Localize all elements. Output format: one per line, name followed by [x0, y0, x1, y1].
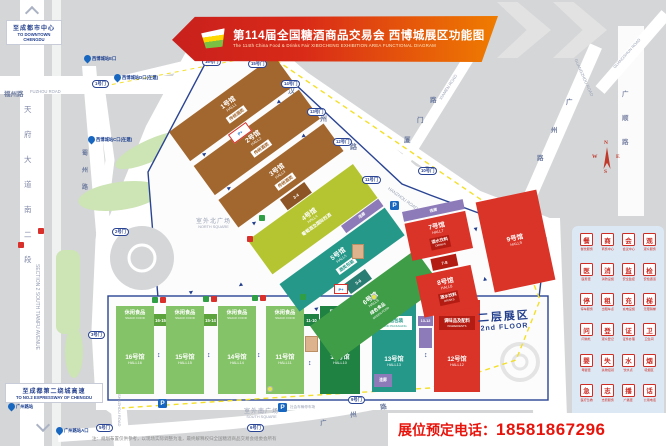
- legend-item-icon: 停: [580, 293, 593, 306]
- restroom-icon: [260, 295, 266, 301]
- legend-item: 停 停车服务: [577, 293, 596, 311]
- phone-number: 18581867296: [496, 420, 606, 440]
- exhibition-map: 第114届全国糖酒商品交易会 西博城展区功能图 The 114th China …: [0, 0, 666, 446]
- south-square-label: 室外南广场SOUTH SQUARE: [244, 406, 279, 419]
- gate-label: 9号门: [348, 396, 365, 404]
- gate-label: 3号门: [88, 331, 105, 339]
- restroom-icon: [211, 296, 217, 302]
- service-point-icon: P+: [334, 284, 348, 294]
- hall-8-category: 酒水饮料DRINKS: [438, 290, 461, 306]
- direction-expressway-cn: 至成都第二绕城高速: [8, 386, 100, 395]
- gate-label: 1号门: [92, 80, 109, 88]
- metro-icon: [83, 54, 93, 64]
- service-building: [305, 336, 318, 352]
- legend-item: 充 充电设施: [619, 293, 638, 311]
- metro-entrance: 广州路站A口: [56, 427, 89, 434]
- phone-label: 展位预定电话：: [398, 420, 496, 440]
- legend-item: 播 广播室: [619, 384, 638, 402]
- legend-item-icon: 梯: [643, 293, 656, 306]
- legend-item-icon: 问: [580, 323, 593, 336]
- legend-panel: 餐 餐饮服务 商 商务中心 会 会议中心 观 观众服务 医 医务室 消 消防设施…: [572, 226, 664, 439]
- gate-label: 13号门: [307, 108, 326, 116]
- legend-item-icon: 志: [601, 384, 614, 397]
- north-square-label: 室外北广场NORTH SQUARE: [196, 216, 231, 229]
- road-label-guangzhou: 广: [566, 96, 573, 106]
- hall-11: 休闲食品SNACK FOOD 11号馆HALL11: [266, 306, 304, 394]
- metro-icon: [7, 402, 17, 412]
- restroom-icon: [160, 297, 166, 303]
- legend-item-icon: 登: [601, 323, 614, 336]
- legend-item: 证 证件办理: [619, 323, 638, 341]
- hall-14: 休闲食品SNACK FOOD 14号馆HALL14: [218, 306, 256, 394]
- booking-phone-bar: 展位预定电话： 18581867296: [388, 413, 666, 446]
- direction-downtown: 至成都市中心 TO DOWNTOWN CHENGDU: [6, 20, 62, 45]
- gate-label: 2号门: [112, 228, 129, 236]
- hall-12-category: 调味品及配料 INGREDIENTS: [439, 316, 475, 330]
- direction-downtown-en: TO DOWNTOWN CHENGDU: [9, 32, 59, 42]
- parking-icon: P: [158, 399, 167, 408]
- legend-item-icon: 婴: [580, 354, 593, 367]
- road-label-shuzhou: 蜀州路: [82, 148, 88, 191]
- connector-15-14: 15-14: [204, 314, 217, 326]
- road-label-guangzhou: 路: [537, 152, 544, 162]
- direction-expressway-en: TO NO.2 EXPRESSWAY OF CHENGDU: [8, 395, 100, 400]
- legend-item-icon: 证: [622, 323, 635, 336]
- gate-label: 14号门: [281, 80, 300, 88]
- hall-15: 休闲食品SNACK FOOD 15号馆HALL15: [166, 306, 204, 394]
- legend-item: 失 失物招领: [598, 354, 617, 372]
- legend-item: 登 观众登记: [598, 323, 617, 341]
- legend-item-icon: 充: [622, 293, 635, 306]
- road-label-tianfu-en: SECTION 2 SOUTH TIANFU AVENUE: [34, 264, 40, 350]
- legend-item: 梯 无障碍梯: [640, 293, 659, 311]
- route-dot-icon: [267, 386, 273, 392]
- metro-entrance: 西博城站C口(在建): [88, 136, 132, 143]
- road-label-guangzhou: 州: [551, 124, 558, 134]
- legend-item: 医 医务室: [577, 263, 596, 281]
- legend-item: 检 安检通道: [640, 263, 659, 281]
- entrance-icon: [203, 296, 209, 302]
- direction-expressway: 至成都第二绕城高速 TO NO.2 EXPRESSWAY OF CHENGDU: [5, 383, 103, 403]
- legend-item: 会 会议中心: [619, 233, 638, 251]
- legend-item: 观 观众服务: [640, 233, 659, 251]
- entrance-icon: [259, 215, 265, 221]
- banner-title: 第114届全国糖酒商品交易会 西博城展区功能图: [233, 30, 485, 43]
- gate-label: 10号门: [418, 167, 437, 175]
- road-label-guangshun: 广顺路: [622, 88, 629, 146]
- gate-label: 6号门: [247, 424, 264, 432]
- road-label-guangzhou-s: 州: [349, 409, 357, 420]
- legend-item-icon: 租: [601, 293, 614, 306]
- legend-item-icon: 观: [643, 233, 656, 246]
- compass-icon: N E S W: [594, 140, 620, 176]
- road-label-xiamen: 门: [417, 114, 424, 124]
- legend-item: 监 安全监控: [619, 263, 638, 281]
- metro-icon: [87, 135, 97, 145]
- legend-item: 餐 餐饮服务: [577, 233, 596, 251]
- road-label-fuzhou: 福州路: [4, 88, 24, 98]
- legend-item: 话 公用电话: [640, 384, 659, 402]
- legend-item: 问 问询处: [577, 323, 596, 341]
- legend-item: 水 饮水点: [619, 354, 638, 372]
- legend-item-icon: 水: [622, 354, 635, 367]
- gate-label: 5号门: [96, 424, 113, 432]
- second-floor-label: 二层展区2nd FLOOR: [477, 306, 530, 333]
- legend-item-icon: 话: [643, 384, 656, 397]
- metro-icon: [55, 426, 65, 436]
- entrance-icon: [152, 297, 158, 303]
- legend-item-icon: 烟: [643, 354, 656, 367]
- legend-item-icon: 播: [622, 384, 635, 397]
- direction-downtown-cn: 至成都市中心: [9, 23, 59, 32]
- legend-item: 急 医疗急救: [577, 384, 596, 402]
- legend-item-icon: 医: [580, 263, 593, 276]
- legend-item: 卫 卫生间: [640, 323, 659, 341]
- gate-label: 12号门: [333, 138, 352, 146]
- legend-item-icon: 卫: [643, 323, 656, 336]
- legend-item-icon: 商: [601, 233, 614, 246]
- hall-8: 8号馆HALL8 酒水饮料DRINKS: [416, 265, 480, 318]
- legend-item-icon: 餐: [580, 233, 593, 246]
- legend-item-icon: 检: [643, 263, 656, 276]
- metro-entrance: 广州路站: [8, 403, 33, 410]
- parking-icon: P: [390, 201, 399, 210]
- legend-item-icon: 会: [622, 233, 635, 246]
- road-label-fuzhou-en: FUZHOU ROAD: [30, 89, 61, 94]
- legend-item: 租 出租车点: [598, 293, 617, 311]
- road-label-xiamen: 路: [430, 94, 437, 104]
- route-dot-icon: [371, 294, 377, 300]
- banner-subtitle: The 114th China Food & Drinks Fair XIBOC…: [233, 43, 436, 48]
- restroom-icon: [247, 236, 253, 242]
- bus-stop-icon: [38, 228, 44, 234]
- metro-icon: [113, 73, 123, 83]
- road-label-xiamen: 厦: [404, 134, 411, 144]
- entrance-icon: [300, 294, 306, 300]
- service-building: [352, 244, 364, 259]
- parking-icon: P: [278, 403, 287, 412]
- hall-16: 休闲食品SNACK FOOD 16号馆HALL16: [116, 306, 154, 394]
- legend-item: 志 志愿服务: [598, 384, 617, 402]
- gate-label: 11号门: [362, 176, 381, 184]
- corridor-box: 连廊: [374, 374, 392, 387]
- legend-item: 消 消防设施: [598, 263, 617, 281]
- connector-13-12: [419, 328, 432, 348]
- road-label-guangzhou-s: 广: [319, 417, 327, 428]
- hall-7-category: 酒水饮料DRINKS: [429, 235, 452, 251]
- metro-entrance: 西博城站E口: [84, 55, 116, 62]
- legend-item-icon: 急: [580, 384, 593, 397]
- legend-item-icon: 消: [601, 263, 614, 276]
- road-label-tianfu: 天府 大道 南二 段: [24, 104, 32, 265]
- road-label-shuzhou-en: SHUZHOU ROAD: [117, 394, 122, 426]
- title-banner: 第114届全国糖酒商品交易会 西博城展区功能图 The 114th China …: [172, 16, 498, 62]
- legend-item-icon: 监: [622, 263, 635, 276]
- map-footnote: 注：规划布置仅供参考，以现场实际调整为准，最终解释权归全国糖酒商品交易会组委会所…: [92, 436, 277, 442]
- fair-logo-icon: [199, 28, 227, 49]
- bus-stop-icon: [18, 242, 24, 248]
- entrance-icon: [252, 295, 258, 301]
- metro-entrance: 西博城站D口(在建): [114, 74, 158, 81]
- legend-item: 商 商务中心: [598, 233, 617, 251]
- legend-item: 烟 吸烟区: [640, 354, 659, 372]
- legend-item: 婴 母婴室: [577, 354, 596, 372]
- legend-item-icon: 失: [601, 354, 614, 367]
- parking-note: 社会车辆停车场: [290, 405, 315, 410]
